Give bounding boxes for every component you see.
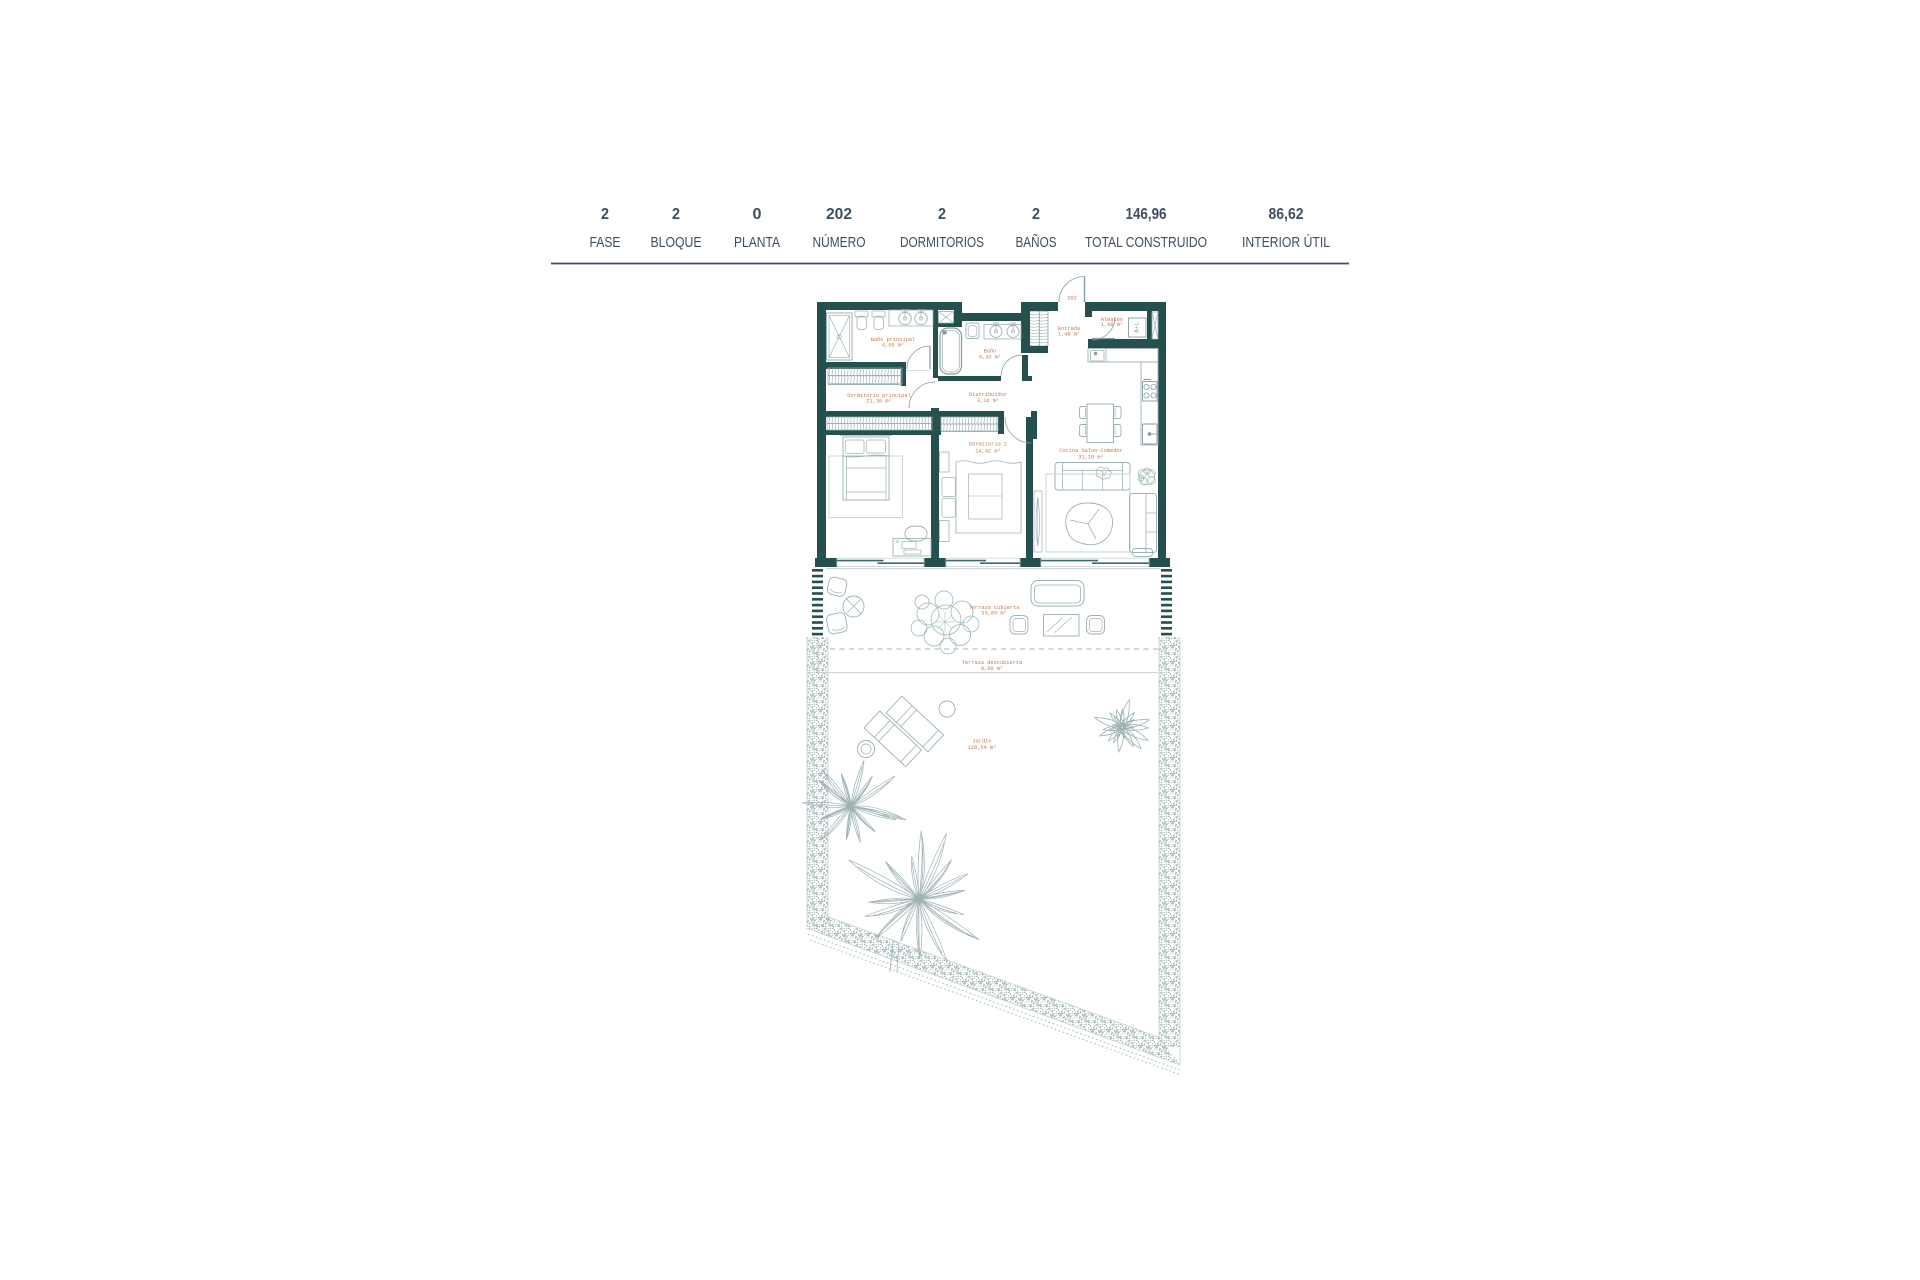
svg-text:Distribuidor: Distribuidor (969, 392, 1007, 398)
svg-text:BLOQUE: BLOQUE (651, 235, 702, 251)
svg-text:31,10 m²: 31,10 m² (1078, 454, 1103, 460)
svg-text:33,83 m²: 33,83 m² (981, 611, 1006, 617)
svg-text:0: 0 (753, 206, 762, 223)
svg-text:9,60 m²: 9,60 m² (981, 666, 1003, 672)
svg-text:PLANTA: PLANTA (734, 235, 780, 251)
svg-text:INTERIOR ÚTIL: INTERIOR ÚTIL (1242, 234, 1330, 251)
svg-text:BAÑOS: BAÑOS (1016, 234, 1057, 251)
svg-text:14,42 m²: 14,42 m² (975, 448, 1000, 454)
svg-text:2: 2 (672, 206, 680, 223)
svg-text:2: 2 (601, 206, 609, 223)
svg-text:2: 2 (938, 206, 946, 223)
svg-text:Cocina Salon-Comedor: Cocina Salon-Comedor (1059, 448, 1123, 454)
svg-text:A+L: A+L (1134, 322, 1141, 333)
svg-text:FASE: FASE (590, 235, 621, 251)
svg-text:NÚMERO: NÚMERO (813, 234, 866, 251)
svg-text:3,16 m²: 3,16 m² (977, 398, 999, 404)
svg-text:128,54 m²: 128,54 m² (968, 745, 997, 751)
svg-text:5,43 m²: 5,43 m² (979, 355, 1001, 361)
svg-text:1,48 m²: 1,48 m² (1058, 331, 1080, 337)
svg-text:21,38 m²: 21,38 m² (866, 399, 891, 405)
svg-text:202: 202 (1067, 296, 1077, 302)
svg-text:4,69 m²: 4,69 m² (882, 342, 904, 348)
svg-text:Dormitorio 2: Dormitorio 2 (969, 441, 1007, 447)
svg-text:DORMITORIOS: DORMITORIOS (900, 235, 984, 251)
svg-text:Jardín: Jardín (972, 739, 991, 745)
svg-text:202: 202 (826, 206, 852, 223)
svg-text:TOTAL CONSTRUIDO: TOTAL CONSTRUIDO (1085, 235, 1207, 251)
svg-text:1,98 m²: 1,98 m² (1101, 322, 1123, 328)
svg-text:146,96: 146,96 (1126, 206, 1167, 223)
svg-text:2: 2 (1032, 206, 1040, 223)
svg-text:86,62: 86,62 (1269, 206, 1304, 223)
